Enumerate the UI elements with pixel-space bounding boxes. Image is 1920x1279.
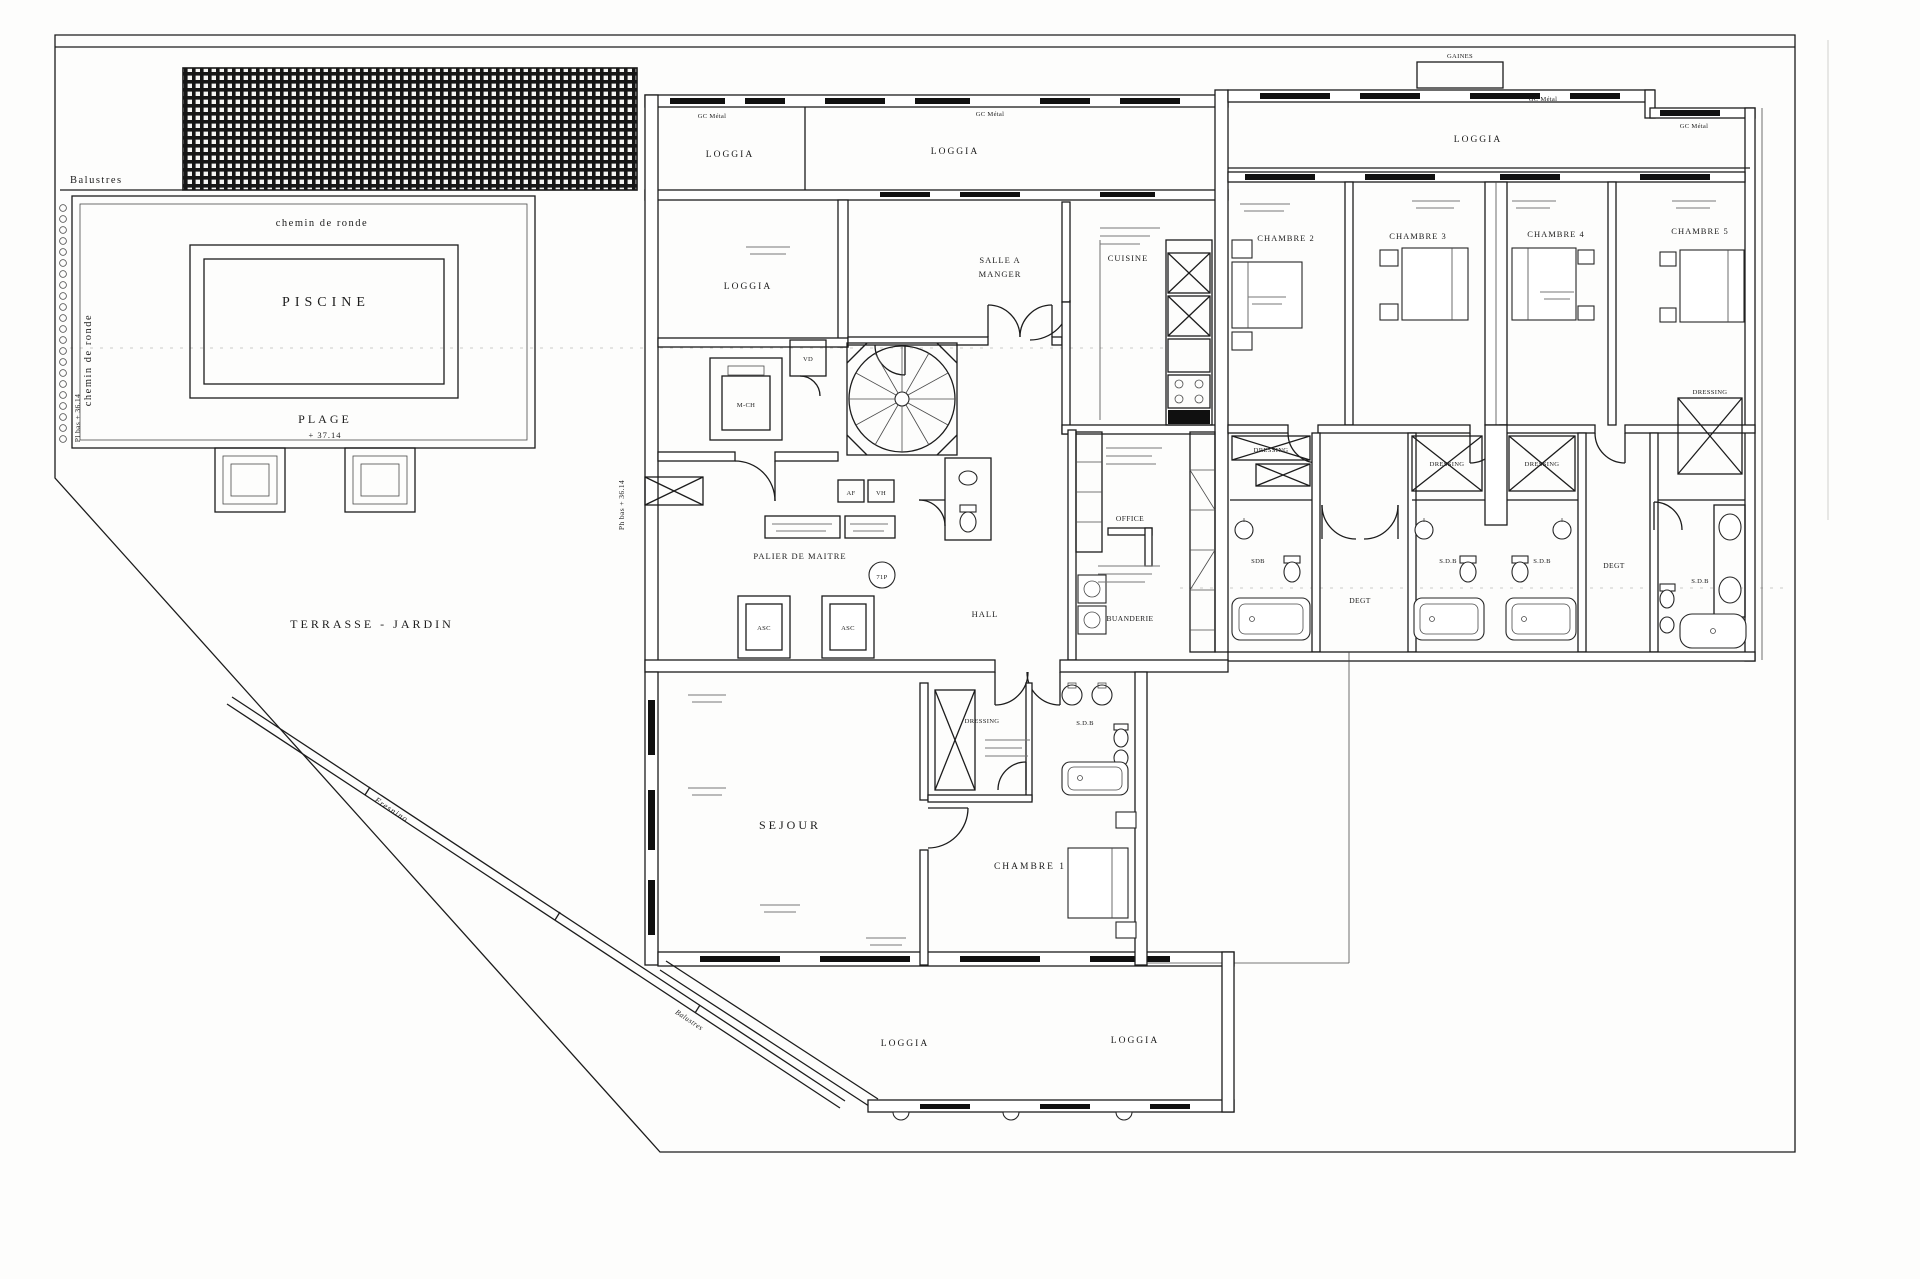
upper-wall-band — [645, 190, 1228, 200]
lower-flat-walls — [645, 652, 1349, 966]
wardrobe — [1232, 436, 1310, 486]
building-left-wall — [645, 95, 658, 670]
wardrobe — [1678, 398, 1742, 474]
wc-room — [919, 458, 991, 540]
label-chemin-de-ronde-top: chemin de ronde — [276, 218, 368, 229]
label-gc-metal: GC Métal — [698, 113, 727, 120]
bathroom-fixtures — [1506, 518, 1576, 640]
room-label-sdb: S.D.B — [1691, 578, 1709, 585]
label-gaines: GAINES — [1447, 53, 1473, 60]
room-label-chambre-3: CHAMBRE 3 — [1389, 231, 1446, 241]
room-label-loggia: LOGGIA — [706, 150, 754, 160]
top-loggia-band — [645, 95, 1228, 190]
label-balustres-diagonal: Balustres — [674, 1007, 705, 1032]
annotation-marks — [772, 524, 888, 531]
annotation-marks — [1100, 228, 1160, 244]
label-chemin-de-ronde-left: chemin de ronde — [83, 314, 94, 406]
label-gc-metal: GC Métal — [1680, 123, 1709, 130]
building-joint-wall — [1215, 90, 1228, 652]
bed — [1068, 812, 1136, 938]
room-label-salle-a-manger: SALLE A — [979, 255, 1020, 265]
spiral-staircase — [847, 343, 957, 455]
label-af: AF — [846, 490, 855, 497]
room-label-terrasse-jardin: TERRASSE - JARDIN — [290, 617, 454, 631]
label-stair-tag: 71P — [876, 574, 887, 581]
room-label-sdb: S.D.B — [1076, 720, 1094, 727]
room-label-dressing: DRESSING — [1430, 461, 1465, 468]
bed — [1380, 248, 1468, 320]
bathroom-fixtures — [1654, 502, 1746, 648]
dressing-room-lower — [928, 683, 1032, 802]
pool-steps — [215, 448, 415, 512]
dumbwaiter — [710, 358, 782, 440]
room-label-loggia: LOGGIA — [881, 1039, 929, 1049]
room-label-chambre-1: CHAMBRE 1 — [994, 862, 1066, 872]
label-ph-bas-level: Ph bas + 36.14 — [617, 480, 626, 530]
room-label-dressing: DRESSING — [965, 718, 1000, 725]
room-label-sdb: S.D.B — [1439, 558, 1457, 565]
text-labels: Balustres chemin de ronde chemin de rond… — [70, 53, 1729, 1049]
label-fresnino: Fresnino — [372, 794, 410, 824]
laundry-appliances — [1078, 575, 1106, 634]
landing-walls — [658, 452, 895, 538]
room-label-loggia: LOGGIA — [1454, 135, 1502, 145]
double-door — [988, 305, 1052, 337]
balustrade-scallops — [60, 205, 67, 443]
label-gc-metal: GC Métal — [1529, 96, 1558, 103]
garden-balustrade-diagonal — [227, 697, 845, 1108]
room-label-loggia: LOGGIA — [931, 147, 979, 157]
room-label-plage: PLAGE — [298, 412, 352, 426]
room-label-sejour: SEJOUR — [759, 818, 821, 832]
label-vh: VH — [876, 490, 886, 497]
pool-terrace — [60, 190, 535, 512]
sheet-border — [55, 35, 1795, 1152]
bed — [1660, 250, 1744, 322]
bathroom-fixtures — [1232, 518, 1310, 640]
door-arc — [875, 345, 905, 375]
kitchen-appliance-column — [1166, 240, 1212, 425]
room-label-loggia: LOGGIA — [1111, 1036, 1159, 1046]
floor-plan-sheet: Balustres chemin de ronde chemin de rond… — [0, 0, 1920, 1279]
label-balustres-top: Balustres — [70, 175, 123, 186]
bed — [1512, 248, 1594, 320]
room-label-palier-de-maitre: PALIER DE MAITRE — [753, 551, 846, 561]
label-plage-level: + 37.14 — [308, 430, 341, 440]
door-arc — [928, 808, 968, 848]
room-label-degt: DEGT — [1349, 596, 1371, 605]
bathroom-fixtures — [1414, 518, 1484, 640]
label-vd: VD — [803, 356, 813, 363]
room-label-dressing: DRESSING — [1525, 461, 1560, 468]
floor-plan-drawing: Balustres chemin de ronde chemin de rond… — [0, 0, 1920, 1279]
room-label-chambre-4: CHAMBRE 4 — [1527, 229, 1584, 239]
room-label-dressing: DRESSING — [1254, 447, 1289, 454]
room-label-loggia: LOGGIA — [724, 282, 772, 292]
label-asc: ASC — [757, 625, 771, 632]
room-label-salle-a-manger: MANGER — [979, 269, 1022, 279]
pergola-trellis — [183, 68, 637, 190]
room-label-chambre-2: CHAMBRE 2 — [1257, 233, 1314, 243]
room-label-hall: HALL — [972, 609, 999, 619]
label-asc: ASC — [841, 625, 855, 632]
double-door — [1322, 505, 1398, 539]
label-pl-bas-level: Pl bas + 36.14 — [73, 394, 82, 443]
room-label-cuisine: CUISINE — [1108, 253, 1149, 263]
room-label-piscine: PISCINE — [282, 295, 370, 310]
tall-loggia — [658, 200, 848, 347]
gaines-duct-box — [1417, 62, 1503, 88]
room-label-dressing: DRESSING — [1693, 389, 1728, 396]
label-m-ch: M-CH — [737, 402, 755, 409]
room-label-sdb: S.D.B — [1533, 558, 1551, 565]
pool — [190, 245, 458, 398]
bathroom-fixtures — [1062, 683, 1128, 795]
room-label-sdb: SDB — [1251, 558, 1265, 565]
room-label-buanderie: BUANDERIE — [1107, 614, 1154, 623]
room-label-degt: DEGT — [1603, 561, 1625, 570]
room-label-office: OFFICE — [1116, 514, 1144, 523]
room-label-chambre-5: CHAMBRE 5 — [1671, 226, 1728, 236]
dining-room — [848, 202, 1070, 375]
label-gc-metal: GC Métal — [976, 111, 1005, 118]
bed — [1232, 240, 1302, 350]
